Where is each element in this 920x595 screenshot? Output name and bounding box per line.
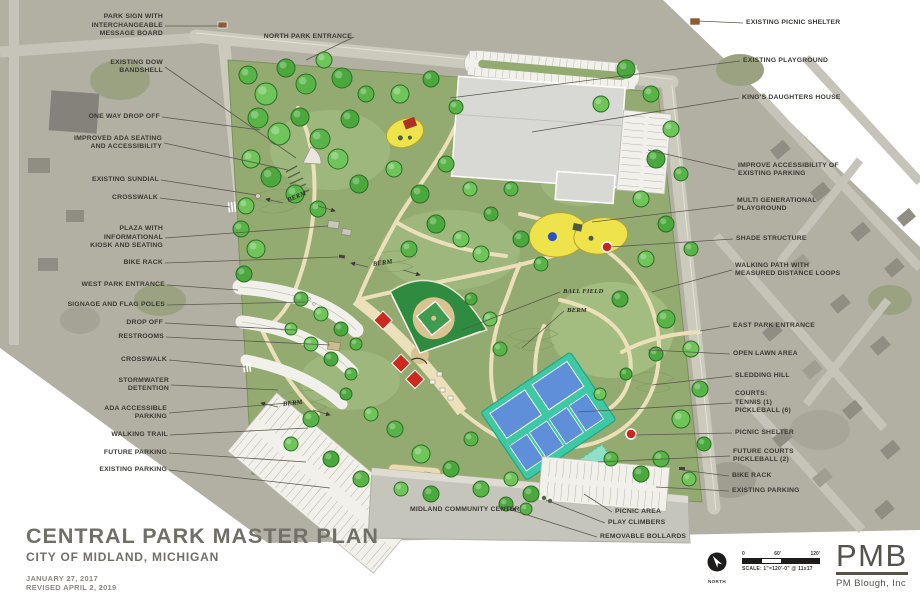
scale-tick: 120' [810, 551, 820, 557]
tree-icon [657, 310, 675, 328]
tree-icon [239, 66, 257, 84]
tree-icon [394, 482, 408, 496]
tree-highlight [414, 188, 421, 195]
tree-icon [291, 108, 309, 126]
tree-icon [310, 201, 326, 217]
firm-logo: PMB [836, 540, 908, 575]
tree-highlight [455, 233, 461, 239]
tree-icon [649, 347, 663, 361]
tree-icon [465, 293, 477, 305]
tree-icon [412, 445, 430, 463]
tree-highlight [699, 439, 704, 444]
existing-parking-east [617, 110, 672, 194]
tree-icon [285, 323, 297, 335]
north-arrow: NORTH [704, 551, 730, 584]
tree-icon [314, 307, 328, 321]
tree-highlight [675, 413, 682, 420]
tree-icon [464, 432, 478, 446]
tree-icon [387, 421, 403, 437]
tree-highlight [353, 178, 360, 185]
tree-icon [233, 221, 249, 237]
tree-icon [633, 466, 649, 482]
tree-highlight [525, 488, 531, 494]
tree-icon [453, 231, 469, 247]
tree-icon [423, 71, 439, 87]
restrooms-building [328, 341, 341, 351]
tree-icon [411, 185, 429, 203]
scale-ticks: 060'120' [742, 551, 820, 557]
site-plan-map [0, 0, 920, 595]
tree-icon [672, 410, 690, 428]
tree-icon [247, 240, 265, 258]
tree-highlight [366, 409, 371, 414]
tree-highlight [331, 152, 339, 160]
tree-icon [499, 497, 513, 511]
north-label: NORTH [704, 579, 730, 584]
tree-highlight [466, 434, 471, 439]
park-sign [218, 22, 227, 28]
tree-icon [353, 471, 369, 487]
tree-icon [604, 452, 618, 466]
tree-icon [268, 123, 290, 145]
tree-icon [682, 472, 696, 486]
tree-highlight [595, 98, 601, 104]
tree-highlight [475, 483, 481, 489]
tree-icon [255, 83, 277, 105]
tree-icon [350, 175, 368, 193]
tree-icon [341, 110, 359, 128]
tree-icon [364, 407, 378, 421]
tree-highlight [485, 314, 490, 319]
tree-highlight [389, 423, 395, 429]
scale-tick: 60' [774, 551, 781, 557]
tree-icon [674, 167, 688, 181]
tree-highlight [676, 169, 681, 174]
tree-icon [423, 486, 439, 502]
tree-icon [358, 86, 374, 102]
tree-icon [523, 486, 539, 502]
leader-line [698, 21, 743, 23]
tree-highlight [388, 163, 394, 169]
tree-highlight [475, 248, 481, 254]
tree-icon [340, 388, 352, 400]
tree-icon [513, 231, 529, 247]
tree-icon [286, 185, 304, 203]
tree-highlight [360, 88, 366, 94]
tree-highlight [313, 132, 321, 140]
tree-icon [350, 338, 362, 350]
tree-highlight [655, 453, 661, 459]
tree-highlight [287, 325, 292, 330]
tree-icon [484, 207, 498, 221]
tree-highlight [465, 184, 470, 189]
tree-highlight [312, 203, 318, 209]
tree-highlight [251, 111, 259, 119]
tree-highlight [245, 153, 252, 160]
tree-icon [310, 129, 330, 149]
tree-highlight [495, 344, 500, 349]
tree-icon [643, 86, 659, 102]
tree-highlight [645, 88, 651, 94]
tree-highlight [415, 448, 422, 455]
tree-highlight [640, 253, 646, 259]
tree-highlight [515, 233, 521, 239]
scale-caption: SCALE: 1"=120'-0" @ 11x17 [742, 566, 820, 572]
tree-highlight [650, 153, 657, 160]
plan-revision: REVISED APRIL 2, 2019 [26, 583, 379, 592]
tree-highlight [258, 86, 266, 94]
tree-highlight [425, 488, 431, 494]
tree-highlight [635, 193, 641, 199]
tree-highlight [486, 209, 491, 214]
tree-icon [473, 246, 489, 262]
tree-highlight [506, 474, 511, 479]
tree-highlight [614, 293, 620, 299]
tree-highlight [294, 111, 301, 118]
tree-icon [647, 150, 665, 168]
tree-icon [504, 182, 518, 196]
tree-icon [493, 342, 507, 356]
tree-icon [443, 461, 459, 477]
tree-highlight [347, 370, 352, 375]
tree-icon [334, 322, 348, 336]
tree-highlight [289, 188, 296, 195]
tree-highlight [250, 243, 257, 250]
firm-block: PMB PM Blough, Inc [836, 540, 908, 589]
existing-sundial [256, 194, 261, 199]
tree-icon [261, 167, 281, 187]
tree-icon [638, 251, 654, 267]
tree-icon [683, 341, 699, 357]
tree-highlight [635, 468, 641, 474]
tree-highlight [606, 454, 611, 459]
tree-icon [449, 100, 463, 114]
tree-icon [386, 161, 402, 177]
tree-highlight [316, 309, 321, 314]
tree-icon [684, 242, 698, 256]
tree-highlight [238, 268, 244, 274]
tree-highlight [318, 54, 324, 60]
tree-highlight [425, 73, 431, 79]
tree-icon [463, 182, 477, 196]
picnic-shelter [626, 429, 636, 439]
tree-highlight [445, 463, 451, 469]
tree-highlight [430, 218, 437, 225]
tree-highlight [242, 69, 249, 76]
tree-icon [242, 150, 260, 168]
tree-highlight [325, 453, 331, 459]
title-block: CENTRAL PARK MASTER PLAN CITY OF MIDLAND… [26, 524, 379, 592]
tree-highlight [440, 158, 446, 164]
north-arrow-icon [706, 551, 728, 573]
tree-icon [692, 381, 708, 397]
tree-icon [238, 198, 254, 214]
tree-icon [612, 291, 628, 307]
tree-icon [294, 292, 308, 306]
tree-highlight [336, 324, 341, 329]
tree-highlight [396, 484, 401, 489]
tree-highlight [651, 349, 656, 354]
tree-highlight [326, 354, 331, 359]
tree-highlight [660, 218, 666, 224]
plan-sheet: PARK SIGN WITH INTERCHANGEABLE MESSAGE B… [0, 0, 920, 595]
tree-highlight [620, 63, 627, 70]
tree-icon [332, 68, 352, 88]
tree-icon [248, 108, 268, 128]
scale-strip [742, 558, 820, 564]
tree-highlight [280, 62, 287, 69]
tree-highlight [344, 113, 351, 120]
tree-icon [504, 472, 518, 486]
tree-highlight [522, 505, 527, 510]
tree-icon [277, 59, 295, 77]
tree-highlight [235, 223, 241, 229]
tree-highlight [286, 439, 291, 444]
tree-icon [663, 121, 679, 137]
firm-name: PM Blough, Inc [836, 578, 908, 589]
plan-date: JANUARY 27, 2017 [26, 574, 379, 583]
bike-rack-east [679, 467, 685, 470]
tree-icon [401, 241, 417, 257]
tree-icon [594, 388, 606, 400]
tree-icon [391, 85, 409, 103]
tree-highlight [665, 123, 671, 129]
existing-picnic-shelter [690, 18, 700, 25]
tree-highlight [394, 88, 401, 95]
tree-icon [328, 149, 348, 169]
tree-highlight [271, 126, 279, 134]
tree-icon [236, 266, 252, 282]
tree-highlight [352, 340, 357, 345]
tree-highlight [296, 294, 301, 299]
tree-highlight [694, 383, 700, 389]
tree-icon [438, 156, 454, 172]
tree-highlight [305, 413, 311, 419]
tree-highlight [451, 102, 456, 107]
tree-highlight [264, 170, 272, 178]
tree-icon [593, 96, 609, 112]
tree-icon [633, 191, 649, 207]
page-subtitle: CITY OF MIDLAND, MICHIGAN [26, 550, 379, 564]
tree-highlight [342, 390, 347, 395]
tree-highlight [335, 71, 343, 79]
tree-icon [323, 451, 339, 467]
tree-icon [303, 411, 319, 427]
scale-bar: 060'120' SCALE: 1"=120'-0" @ 11x17 [742, 551, 820, 572]
tree-icon [697, 437, 711, 451]
tree-highlight [403, 243, 409, 249]
scale-tick: 0 [742, 551, 745, 557]
tree-highlight [685, 343, 691, 349]
tree-icon [658, 216, 674, 232]
tree-icon [284, 437, 298, 451]
tree-highlight [686, 244, 691, 249]
tree-highlight [506, 184, 511, 189]
tree-highlight [299, 77, 307, 85]
tree-icon [473, 481, 489, 497]
tree-highlight [660, 313, 667, 320]
tree-highlight [240, 200, 246, 206]
tree-icon [296, 74, 316, 94]
tree-highlight [355, 473, 361, 479]
tree-highlight [467, 295, 472, 300]
tree-icon [324, 352, 338, 366]
tree-highlight [596, 390, 601, 395]
tree-highlight [501, 499, 506, 504]
tree-highlight [622, 370, 627, 375]
tree-icon [620, 368, 632, 380]
tree-icon [427, 215, 445, 233]
page-title: CENTRAL PARK MASTER PLAN [26, 524, 379, 549]
tree-highlight [684, 474, 689, 479]
tree-highlight [536, 259, 541, 264]
tree-icon [534, 257, 548, 271]
tree-icon [345, 368, 357, 380]
